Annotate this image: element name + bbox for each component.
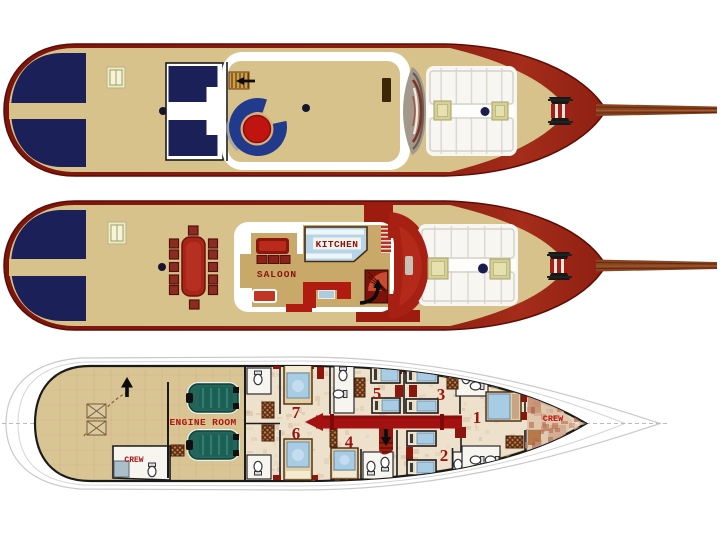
svg-text:4: 4 xyxy=(345,433,354,452)
svg-text:3: 3 xyxy=(437,385,446,404)
svg-text:1: 1 xyxy=(473,408,482,427)
svg-text:7: 7 xyxy=(292,403,301,422)
svg-text:2: 2 xyxy=(440,446,449,465)
svg-text:CREW: CREW xyxy=(543,414,564,424)
svg-text:CREW: CREW xyxy=(124,456,143,465)
svg-text:ENGINE ROOM: ENGINE ROOM xyxy=(169,417,236,428)
svg-text:KITCHEN: KITCHEN xyxy=(316,239,359,250)
svg-text:6: 6 xyxy=(292,424,301,443)
svg-text:5: 5 xyxy=(373,384,382,403)
svg-text:SALOON: SALOON xyxy=(257,269,297,280)
